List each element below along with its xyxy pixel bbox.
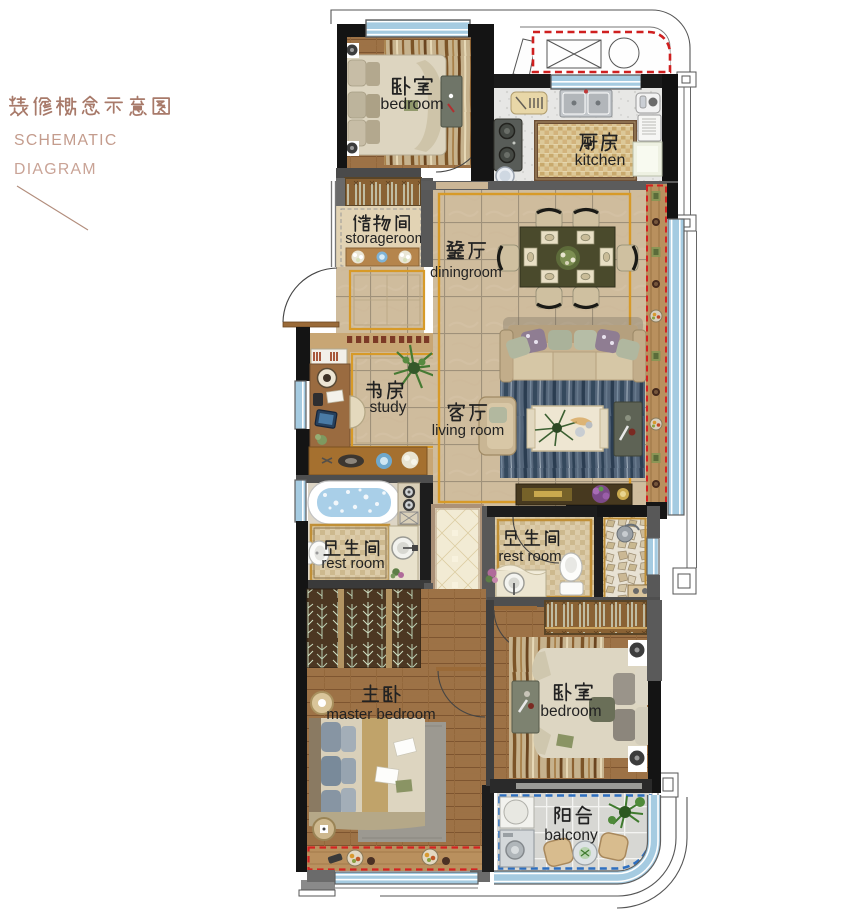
svg-text:SCHEMATIC: SCHEMATIC [14,132,118,149]
svg-text:study: study [369,399,406,416]
svg-text:bedroom: bedroom [380,96,443,113]
svg-text:rest room: rest room [321,555,384,572]
svg-text:storageroom: storageroom [345,231,426,247]
svg-text:balcony: balcony [544,827,598,844]
svg-text:living room: living room [432,422,505,439]
svg-text:diningroom: diningroom [430,265,502,281]
svg-text:DIAGRAM: DIAGRAM [14,161,97,178]
svg-text:rest room: rest room [498,548,561,565]
svg-text:bedroom: bedroom [540,703,601,720]
svg-text:kitchen: kitchen [575,152,626,169]
svg-text:master bedroom: master bedroom [326,706,435,723]
